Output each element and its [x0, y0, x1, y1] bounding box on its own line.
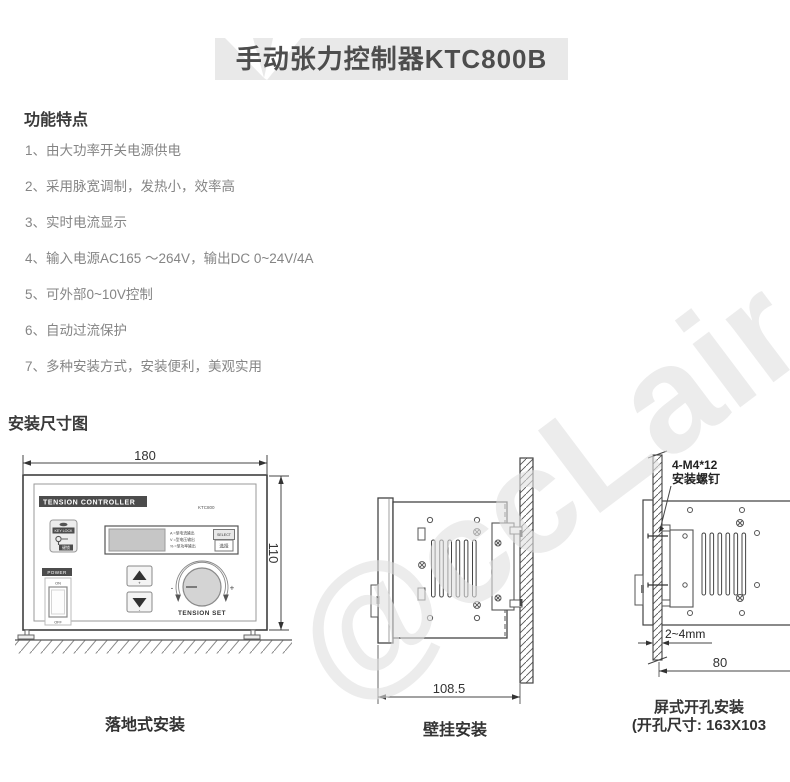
power-on-label: ON: [55, 582, 61, 586]
power-label: POWER: [47, 570, 67, 575]
wall-section: [520, 458, 533, 683]
down-button: -: [127, 592, 152, 612]
front-bezel: [378, 498, 393, 643]
caption-panel-line2: (开孔尺寸: 163X103: [608, 717, 790, 735]
caption-panel-line1: 屏式开孔安装: [608, 699, 790, 717]
up-button: +: [127, 566, 152, 586]
feature-item: 2、采用脉宽调制，发热小，效率高: [25, 169, 314, 205]
keylock-label: KEY LOCK: [55, 529, 74, 533]
wall-mount-diagram: 108.5: [358, 438, 563, 710]
page-title: 手动张力控制器KTC800B: [215, 38, 568, 80]
install-heading: 安装尺寸图: [8, 410, 88, 434]
feature-item: 4、输入电源AC165 ～264V，输出DC 0~24V/4A: [25, 241, 314, 277]
display-module: A =型电流输出 V =型电压输出 % =型功率输出 SELECT 选择: [105, 526, 238, 554]
panel-mount-diagram: 4-M4*12 安装螺钉 2~4mm: [602, 438, 790, 710]
width-dimension: 180: [23, 448, 267, 474]
knob-plus-label: +: [230, 584, 235, 593]
front-bezel: [643, 500, 653, 625]
caption-wall-mount: 壁挂安装: [390, 716, 520, 740]
thickness-dimension: 2~4mm: [638, 627, 712, 646]
model-label: KTC800: [198, 505, 215, 510]
feature-list: 1、由大功率开关电源供电 2、采用脉宽调制，发热小，效率高 3、实时电流显示 4…: [25, 133, 314, 385]
mount-bracket: [662, 525, 693, 607]
mounting-panel: [653, 455, 662, 660]
mount-holes: [688, 508, 760, 616]
feature-item: 1、由大功率开关电源供电: [25, 133, 314, 169]
device-body: [393, 502, 507, 638]
select-cn-label: 选择: [219, 543, 229, 550]
feature-item: 5、可外部0~10V控制: [25, 277, 314, 313]
up-plus-label: +: [138, 581, 141, 586]
caption-floor-mount: 落地式安装: [60, 711, 230, 735]
keylock-cn-label: 键锁: [62, 544, 70, 550]
dim-110-label: 110: [266, 543, 281, 564]
caption-panel-mount: 屏式开孔安装 (开孔尺寸: 163X103: [608, 699, 790, 735]
lcd-screen: [109, 529, 165, 551]
feature-item: 3、实时电流显示: [25, 205, 314, 241]
power-off-label: OFF: [54, 621, 62, 625]
features-heading: 功能特点: [24, 106, 88, 130]
depth-dimension: 108.5: [378, 645, 520, 704]
dim-thickness-label: 2~4mm: [665, 627, 705, 641]
select-button-label: SELECT: [217, 533, 232, 537]
feature-item: 6、自动过流保护: [25, 313, 314, 349]
vent-slots: [702, 533, 746, 595]
page-title-text: 手动张力控制器KTC800B: [236, 44, 548, 74]
feature-item: 7、多种安装方式，安装便利，美观实用: [25, 349, 314, 385]
depth-dimension: 80: [659, 655, 790, 677]
keylock-indicator-icon: [60, 523, 68, 527]
dim-108-label: 108.5: [433, 681, 466, 696]
dim-180-label: 180: [134, 448, 156, 463]
device-feet: [18, 630, 260, 639]
bracket-hook: [662, 600, 670, 606]
dim-80-label: 80: [713, 655, 727, 670]
knob-label: TENSION SET: [178, 610, 226, 617]
display-legend-a: A =型电流输出: [170, 531, 195, 536]
display-legend-v: V =型电压输出: [170, 537, 195, 542]
ground-hatch: [15, 641, 292, 654]
screw-label-line2: 安装螺钉: [672, 471, 720, 486]
floor-mount-diagram: 180 TENSION CONTROLLER KTC800 KEY LOCK 键…: [10, 443, 310, 678]
page: 手动张力控制器KTC800B 功能特点 1、由大功率开关电源供电 2、采用脉宽调…: [0, 0, 790, 782]
height-dimension: 110: [266, 476, 289, 630]
knob-minus-label: -: [171, 584, 174, 593]
screw-label-line1: 4-M4*12: [672, 458, 718, 472]
keylock-badge: KEY LOCK 键锁: [50, 520, 77, 552]
brand-bar-label: TENSION CONTROLLER: [43, 500, 135, 507]
display-legend-p: % =型功率输出: [170, 544, 196, 549]
